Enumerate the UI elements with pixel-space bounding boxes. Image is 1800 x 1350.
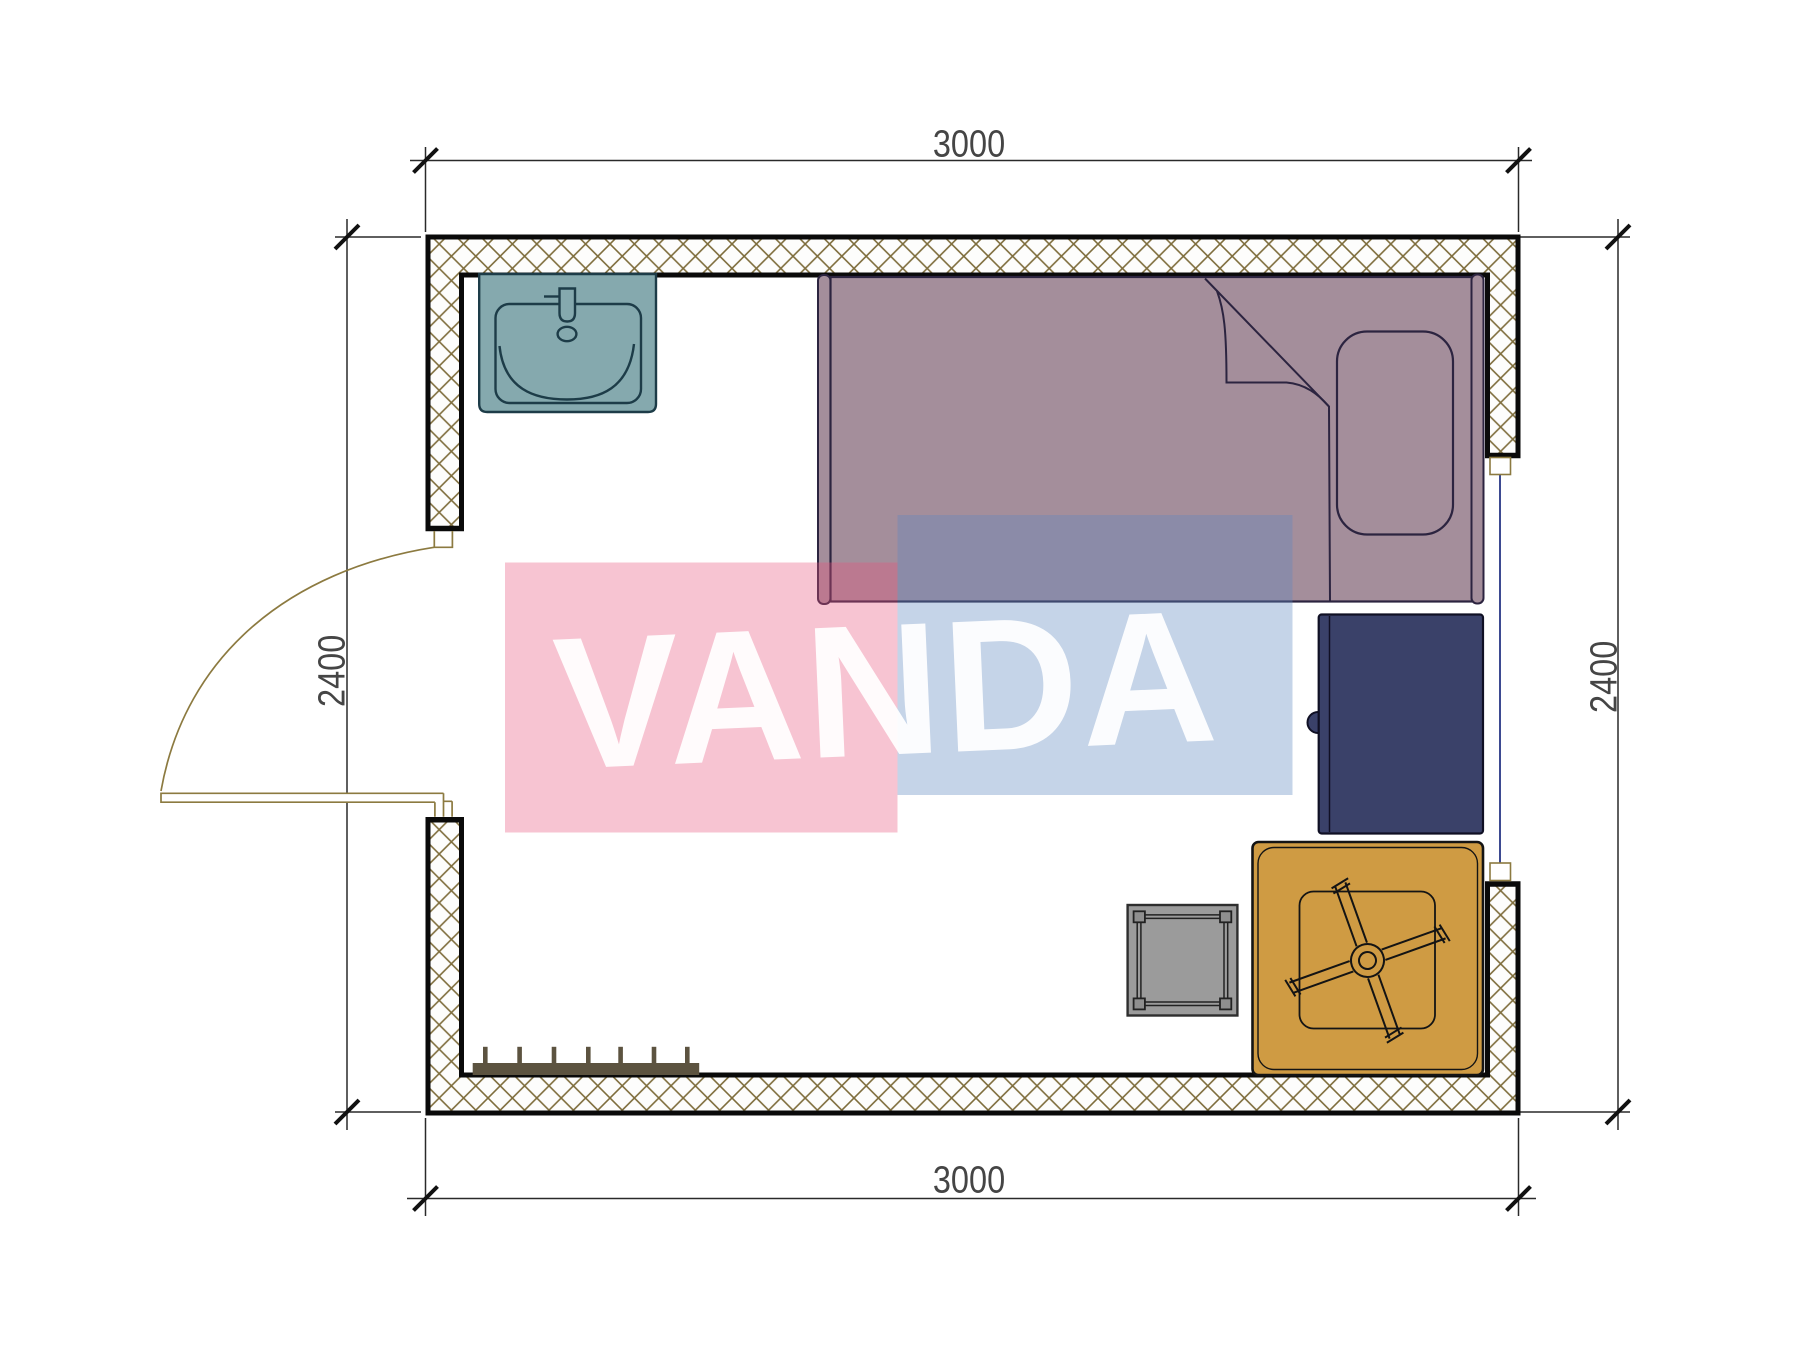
svg-text:VANDA: VANDA [550,570,1223,809]
svg-text:2400: 2400 [311,635,353,707]
svg-text:3000: 3000 [933,123,1005,165]
svg-text:2400: 2400 [1583,641,1625,713]
svg-text:3000: 3000 [933,1159,1005,1201]
